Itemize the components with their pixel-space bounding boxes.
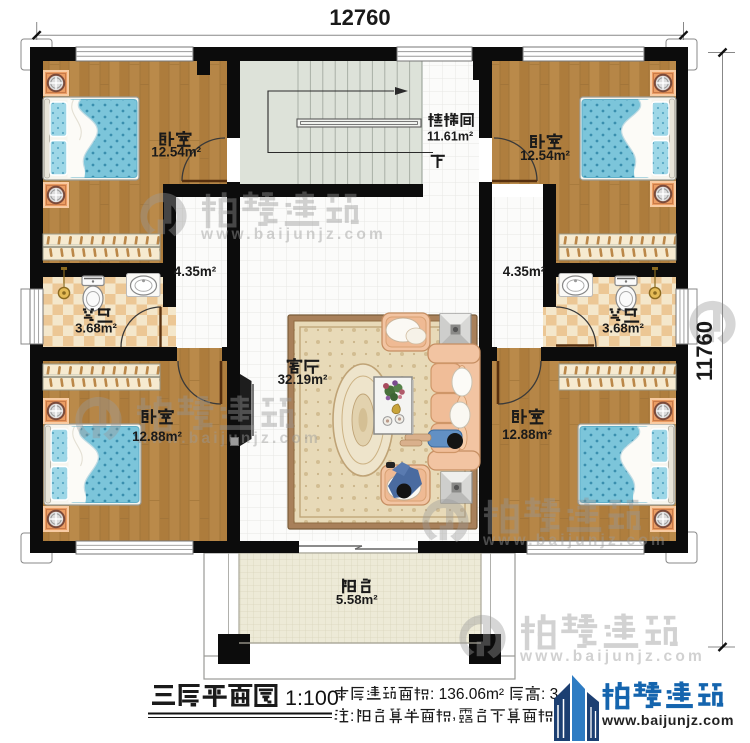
- svg-text:4.35m²: 4.35m²: [503, 264, 546, 279]
- svg-text:11760: 11760: [692, 321, 717, 381]
- svg-text:: 136.06m²: : 136.06m²: [430, 686, 504, 703]
- svg-text:3.68m²: 3.68m²: [75, 321, 117, 336]
- svg-text:3.68m²: 3.68m²: [602, 321, 644, 336]
- svg-text:www.baijunjz.com: www.baijunjz.com: [519, 648, 705, 665]
- svg-text:12.88m²: 12.88m²: [502, 427, 552, 442]
- svg-text:www.baijunjz.com: www.baijunjz.com: [482, 532, 668, 549]
- svg-text:12760: 12760: [329, 5, 390, 30]
- svg-text:12.88m²: 12.88m²: [132, 429, 182, 444]
- svg-text:www.baijunjz.com: www.baijunjz.com: [601, 713, 734, 729]
- svg-text:32.19m²: 32.19m²: [278, 372, 328, 387]
- svg-text:,: ,: [452, 706, 456, 723]
- svg-text:1:100: 1:100: [285, 686, 339, 710]
- svg-text:4.35m²: 4.35m²: [174, 264, 217, 279]
- svg-text:11.61m²: 11.61m²: [427, 130, 473, 144]
- svg-text:12.54m²: 12.54m²: [151, 145, 201, 160]
- svg-text:www.baijunjz.com: www.baijunjz.com: [200, 226, 386, 243]
- svg-text:12.54m²: 12.54m²: [520, 148, 570, 163]
- svg-text:5.58m²: 5.58m²: [336, 592, 378, 607]
- svg-text::: :: [350, 708, 354, 725]
